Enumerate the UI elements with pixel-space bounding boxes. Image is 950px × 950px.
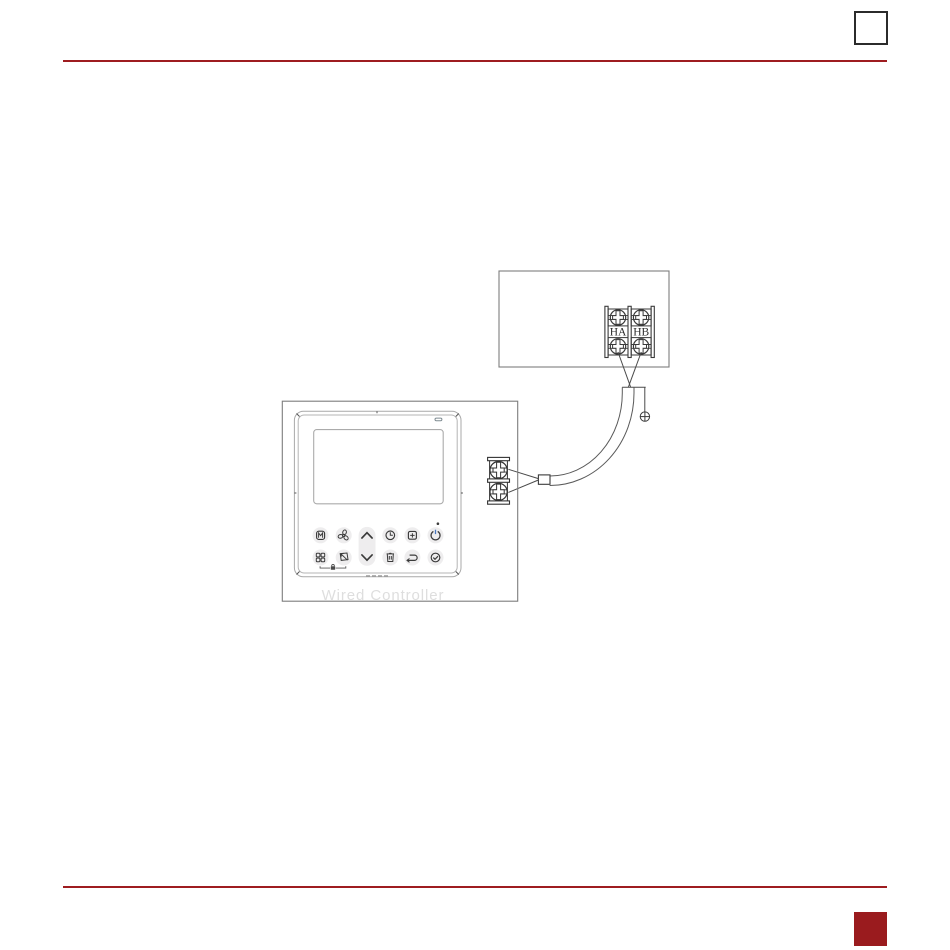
svg-text:HA: HA <box>610 327 627 339</box>
svg-text:HB: HB <box>633 327 649 339</box>
